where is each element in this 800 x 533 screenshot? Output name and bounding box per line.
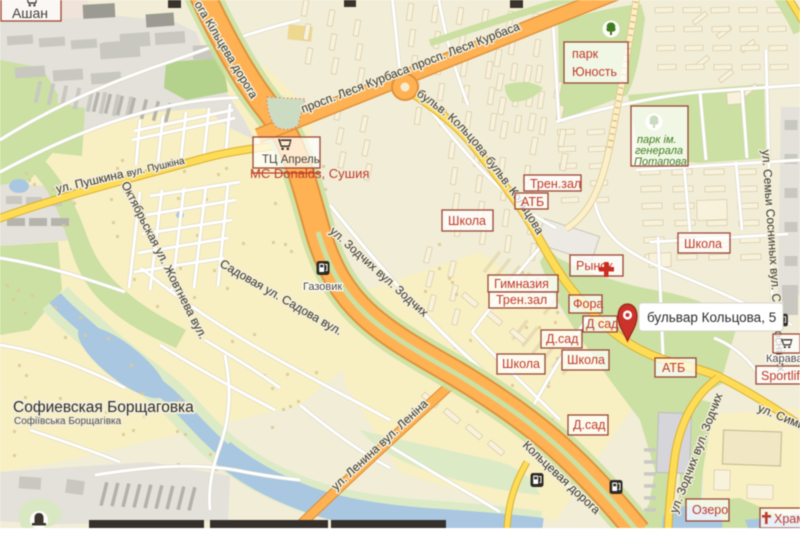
svg-text:ТЦ Апрель: ТЦ Апрель: [262, 154, 320, 166]
svg-text:АТБ: АТБ: [662, 361, 685, 375]
svg-text:Школа: Школа: [567, 353, 605, 367]
svg-text:Sportlif: Sportlif: [761, 369, 800, 383]
svg-text:Ашан: Ашан: [12, 5, 48, 21]
svg-text:Озеро: Озеро: [692, 503, 728, 517]
svg-text:Д.сад: Д.сад: [546, 332, 579, 346]
svg-text:АТБ: АТБ: [521, 195, 544, 209]
svg-text:Гимназия: Гимназия: [494, 277, 549, 291]
svg-text:Храм: Храм: [774, 512, 800, 526]
svg-text:Д.сад: Д.сад: [573, 418, 606, 432]
svg-text:Каравай: Каравай: [766, 353, 800, 365]
svg-text:Софіївська Борщагівка: Софіївська Борщагівка: [14, 415, 122, 427]
svg-text:парк: парк: [572, 47, 599, 61]
svg-text:Потапова: Потапова: [634, 156, 687, 168]
svg-text:Софиевская Борщаговка: Софиевская Борщаговка: [13, 399, 194, 416]
svg-text:бульвар Кольцова, 5: бульвар Кольцова, 5: [647, 310, 776, 325]
svg-text:Д сад: Д сад: [586, 317, 619, 331]
svg-text:Школа: Школа: [448, 214, 486, 228]
svg-text:Трен.зал: Трен.зал: [496, 293, 547, 307]
svg-text:Газовик: Газовик: [303, 281, 342, 293]
svg-text:Трен.зал: Трен.зал: [530, 177, 581, 191]
svg-text:Школа: Школа: [684, 237, 722, 251]
svg-text:Школа: Школа: [502, 357, 540, 371]
svg-text:Юность: Юность: [572, 65, 617, 79]
svg-text:Фора: Фора: [573, 297, 603, 311]
